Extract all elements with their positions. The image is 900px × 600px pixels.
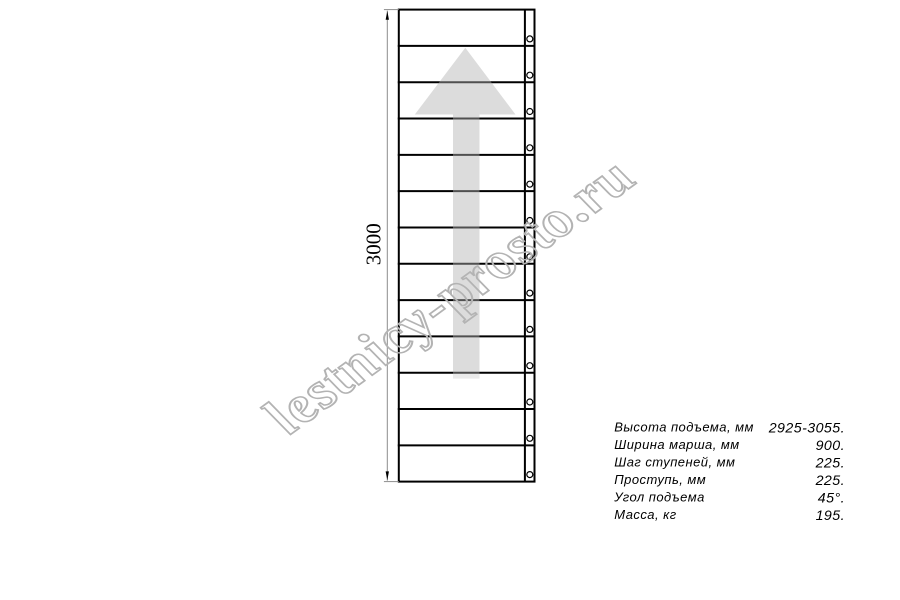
svg-text:2925-3055.: 2925-3055. [768, 420, 845, 436]
svg-text:Угол подъема: Угол подъема [613, 489, 704, 504]
svg-text:3000: 3000 [362, 223, 386, 265]
svg-text:Ширина марша, мм: Ширина марша, мм [614, 437, 739, 452]
svg-text:Шаг ступеней, мм: Шаг ступеней, мм [614, 454, 735, 469]
svg-text:Высота подъема, мм: Высота подъема, мм [614, 419, 754, 434]
svg-text:Проступь, мм: Проступь, мм [614, 472, 706, 487]
svg-text:195.: 195. [816, 508, 845, 524]
svg-text:lestnicy-prosto.ru: lestnicy-prosto.ru [246, 149, 651, 443]
svg-text:45°.: 45°. [818, 490, 845, 506]
svg-text:225.: 225. [815, 473, 845, 489]
svg-text:Масса, кг: Масса, кг [614, 507, 676, 522]
svg-text:900.: 900. [816, 438, 845, 454]
svg-text:225.: 225. [815, 455, 845, 471]
